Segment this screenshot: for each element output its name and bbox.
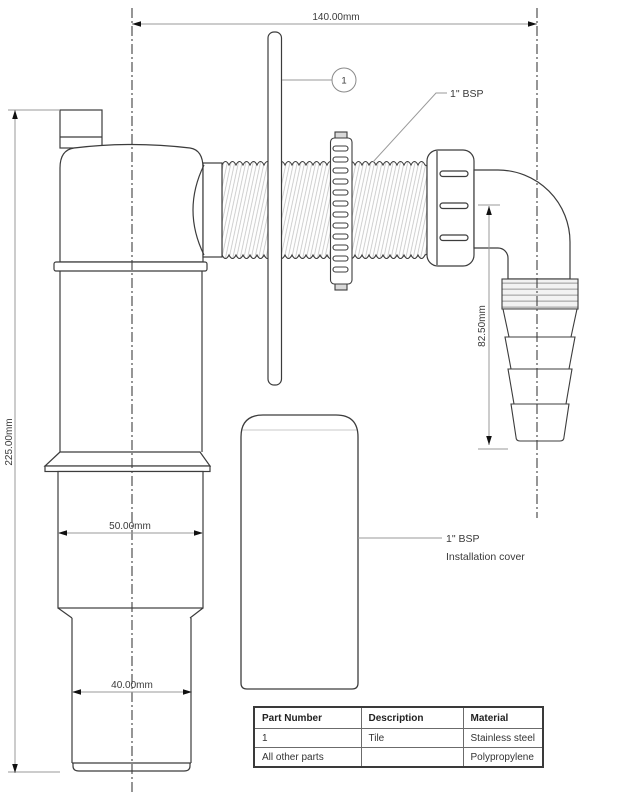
inlet-stub — [60, 110, 102, 148]
backnut — [331, 132, 353, 290]
bsp-thread-label: 1" BSP — [450, 88, 484, 100]
cell-part-number: All other parts — [254, 748, 361, 768]
upper-flange — [54, 262, 207, 271]
cell-part-number: 1 — [254, 729, 361, 748]
table-row: 1 Tile Stainless steel — [254, 729, 543, 748]
dim-50-label: 50.00mm — [109, 521, 151, 532]
flexible-thread-pipe — [222, 162, 427, 259]
col-material: Material — [463, 707, 543, 729]
dim-40-label: 40.00mm — [111, 680, 153, 691]
callout-1-label: 1 — [341, 76, 346, 87]
col-part-number: Part Number — [254, 707, 361, 729]
col-description: Description — [361, 707, 463, 729]
cell-material: Polypropylene — [463, 748, 543, 768]
cell-description — [361, 748, 463, 768]
dim-82-label: 82.50mm — [477, 305, 488, 347]
socket — [203, 163, 222, 257]
swivel-nut — [427, 150, 474, 266]
elbow — [474, 170, 570, 279]
dim-225-label: 225.00mm — [4, 418, 15, 465]
flex-pipe-path — [222, 162, 427, 259]
cell-description: Tile — [361, 729, 463, 748]
trap-body — [45, 110, 222, 771]
male-thread — [502, 279, 578, 309]
pipe-50mm — [58, 472, 203, 609]
parts-table: Part Number Description Material 1 Tile … — [253, 706, 544, 768]
cell-material: Stainless steel — [463, 729, 543, 748]
table-row: All other parts Polypropylene — [254, 748, 543, 768]
installation-cover — [241, 415, 358, 689]
cover-label-line1: 1" BSP — [446, 533, 480, 545]
technical-drawing-page: 140.00mm 225.00mm 82.50mm 50.00mm 40.00m… — [0, 0, 626, 800]
cover-label-line2: Installation cover — [446, 551, 525, 563]
skirt-flange — [45, 452, 210, 466]
mid-pipe — [60, 271, 202, 452]
parts-table-header-row: Part Number Description Material — [254, 707, 543, 729]
tile-plate — [268, 32, 282, 385]
hose-barb-connector — [502, 279, 578, 441]
plumbing-trap-diagram: 140.00mm 225.00mm 82.50mm 50.00mm 40.00m… — [0, 0, 626, 800]
dim-140-label: 140.00mm — [312, 12, 359, 23]
